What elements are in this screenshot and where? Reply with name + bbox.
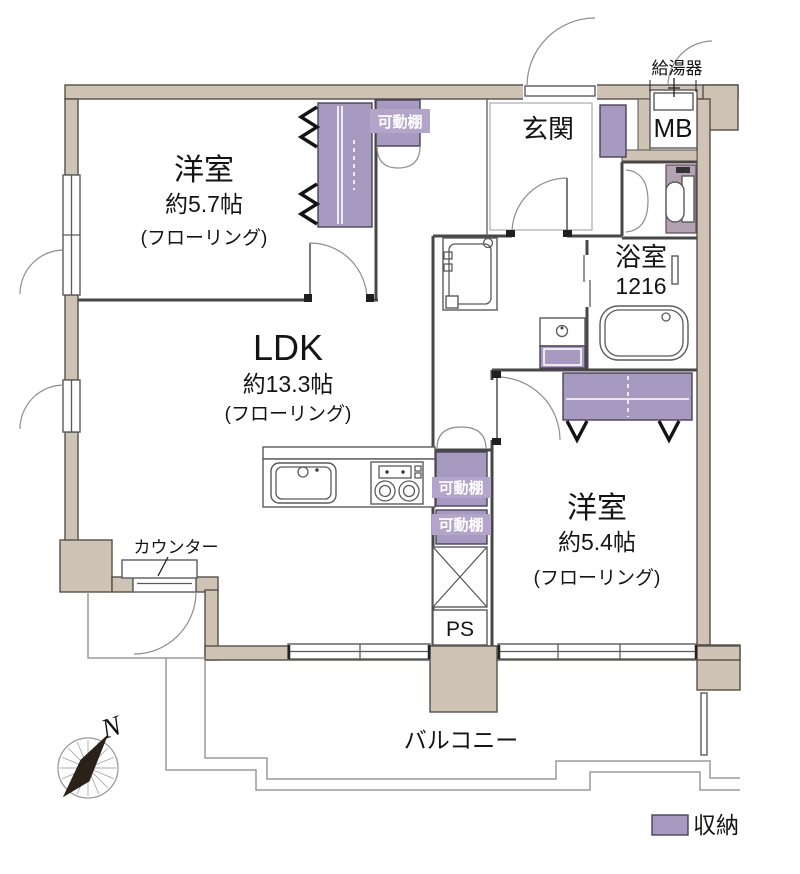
washing-machine-icon [443, 238, 497, 310]
ldk-name: LDK [253, 327, 323, 368]
floorplan: 洋室 約5.7帖 (フローリング) LDK 約13.3帖 (フローリング) 洋室… [0, 0, 800, 874]
window-ldk-icon [20, 380, 80, 432]
bedroom2-size: 約5.4帖 [558, 529, 636, 555]
toilet-room [626, 165, 696, 233]
counter-area [122, 557, 197, 578]
porch-rail [88, 592, 205, 658]
porch-door-icon [133, 575, 196, 654]
compass-icon [58, 736, 118, 798]
hanger-icon [659, 421, 679, 440]
stove-icon [371, 462, 423, 504]
hanger-icon [301, 184, 317, 224]
movable-shelf-2-icon [432, 452, 491, 506]
bedroom2-area [492, 371, 692, 445]
movable-shelf-1-icon [370, 100, 430, 168]
bedroom2-floor: (フローリング) [534, 567, 661, 589]
counter-label: カウンター [134, 538, 219, 557]
ldk-floor: (フローリング) [225, 403, 352, 425]
bedroom1-floor: (フローリング) [141, 227, 268, 249]
bedroom1-size: 約5.7帖 [165, 191, 243, 217]
storage-column [432, 427, 491, 645]
bathroom-label: 浴室 [615, 242, 667, 272]
bathroom-size: 1216 [615, 273, 666, 299]
shaft-icon [433, 547, 487, 607]
water-heater-label: 給湯器 [652, 59, 703, 78]
bedroom1-closet-icon [301, 103, 372, 227]
shoe-cabinet-icon [600, 105, 626, 157]
hanger-icon [567, 421, 587, 440]
pipe-space-label: PS [446, 618, 474, 641]
washroom-area [443, 178, 585, 368]
kitchen-area [263, 447, 435, 507]
counter-icon [122, 560, 197, 578]
movable-shelf-1-label: 可動棚 [377, 113, 422, 131]
balcony-window-right-icon [498, 644, 697, 659]
balcony-window-left-icon [288, 644, 430, 659]
ldk-size: 約13.3帖 [243, 371, 334, 397]
toilet-bowl-icon [666, 182, 684, 222]
bathtub-icon [600, 306, 688, 360]
balcony-area [88, 592, 740, 790]
floorplan-drawing: 洋室 約5.7帖 (フローリング) LDK 約13.3帖 (フローリング) 洋室… [0, 0, 800, 874]
window-bedroom1-icon [20, 175, 80, 295]
movable-shelf-3-label: 可動棚 [438, 516, 483, 534]
washbasin-icon [540, 318, 585, 368]
legend [652, 815, 688, 835]
hanger-icon [301, 107, 317, 147]
kitchen-sink-icon [271, 463, 336, 503]
bath-shelf-icon [672, 256, 678, 284]
entrance-door-icon [525, 86, 595, 96]
movable-shelf-2-label: 可動棚 [438, 479, 483, 497]
bedroom1-name: 洋室 [174, 154, 234, 187]
meter-box-label: MB [654, 113, 693, 143]
balcony-partition-icon [701, 693, 707, 755]
bedroom2-closet-icon [563, 373, 692, 440]
entrance-label: 玄関 [522, 114, 574, 144]
balcony-label: バルコニー [404, 727, 519, 753]
legend-storage-swatch-icon [652, 815, 688, 835]
bedroom2-name: 洋室 [567, 492, 627, 525]
legend-storage-label: 収納 [693, 812, 739, 838]
